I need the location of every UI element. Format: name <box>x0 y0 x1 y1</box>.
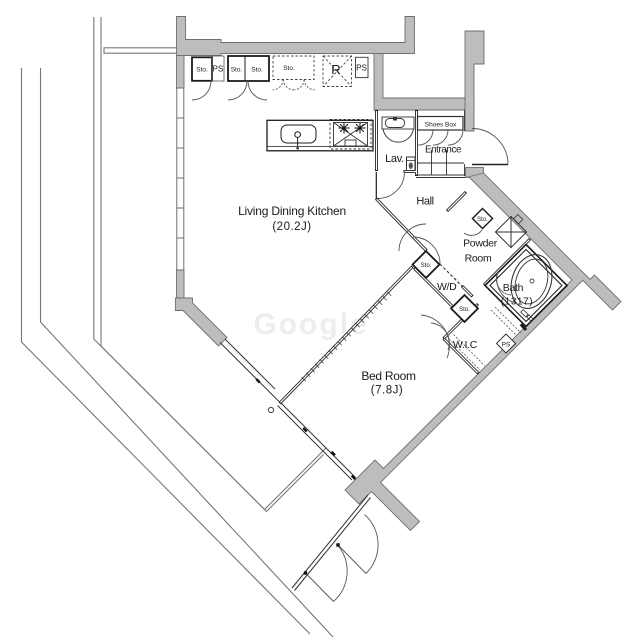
svg-text:Powder: Powder <box>463 238 498 250</box>
svg-text:Bed Room: Bed Room <box>361 369 416 383</box>
svg-text:Sto.: Sto. <box>459 307 470 313</box>
svg-text:Sto.: Sto. <box>477 217 488 223</box>
svg-text:W.I.C: W.I.C <box>453 339 478 351</box>
svg-text:PS: PS <box>213 65 224 74</box>
svg-text:Sto.: Sto. <box>231 67 243 74</box>
svg-text:Sto.: Sto. <box>283 65 295 72</box>
svg-text:(1317): (1317) <box>501 297 534 308</box>
svg-text:(7.8J): (7.8J) <box>371 385 403 397</box>
svg-text:W/D: W/D <box>437 281 457 293</box>
svg-text:Entrance: Entrance <box>425 145 462 156</box>
svg-text:Sto.: Sto. <box>421 263 432 269</box>
svg-text:Google: Google <box>253 308 368 341</box>
svg-text:Shoes Box: Shoes Box <box>425 122 457 129</box>
svg-text:R: R <box>331 62 340 77</box>
svg-text:Lav.: Lav. <box>385 153 404 165</box>
svg-text:Room: Room <box>465 253 492 265</box>
svg-text:Living Dining Kitchen: Living Dining Kitchen <box>238 204 346 218</box>
svg-text:PS: PS <box>356 64 367 73</box>
svg-text:Sto.: Sto. <box>196 67 208 74</box>
svg-text:(20.2J): (20.2J) <box>272 221 311 233</box>
svg-text:PS: PS <box>502 342 511 349</box>
svg-text:Sto.: Sto. <box>251 67 263 74</box>
svg-text:Hall: Hall <box>416 196 433 208</box>
svg-text:Bath: Bath <box>503 282 524 294</box>
